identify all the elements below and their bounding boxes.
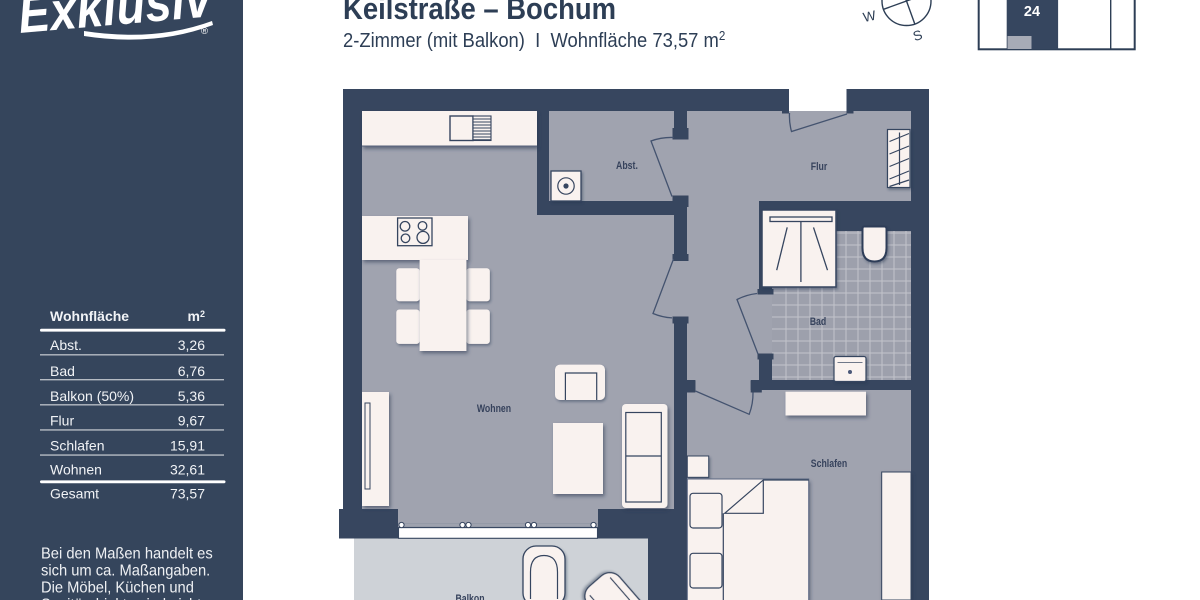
svg-text:5,36: 5,36 [178, 388, 205, 404]
svg-text:Wohnen: Wohnen [477, 403, 511, 415]
svg-text:®: ® [201, 26, 208, 37]
svg-text:Wohnen: Wohnen [50, 462, 102, 478]
svg-text:Gesamt: Gesamt [50, 486, 99, 502]
svg-text:73,57: 73,57 [170, 486, 205, 502]
svg-text:W: W [862, 8, 878, 25]
svg-text:Die Möbel, Küchen und: Die Möbel, Küchen und [41, 579, 194, 597]
svg-text:15,91: 15,91 [170, 437, 205, 453]
svg-text:2-Zimmer (mit Balkon) I Wohn: 2-Zimmer (mit Balkon) I Wohnfläche 73,57… [343, 29, 725, 53]
svg-text:Schlafen: Schlafen [811, 458, 847, 470]
svg-text:Balkon (50%): Balkon (50%) [50, 388, 134, 404]
svg-text:Abst.: Abst. [50, 337, 82, 353]
svg-text:sich um ca. Maßangaben.: sich um ca. Maßangaben. [41, 562, 210, 580]
svg-text:9,67: 9,67 [178, 413, 205, 429]
svg-text:Bei den Maßen handelt es: Bei den Maßen handelt es [41, 545, 213, 563]
svg-text:Abst.: Abst. [616, 160, 638, 172]
svg-text:Flur: Flur [50, 413, 74, 429]
svg-text:Balkon: Balkon [455, 593, 484, 600]
svg-text:3,26: 3,26 [178, 337, 205, 353]
svg-text:Keilstraße – Bochum: Keilstraße – Bochum [343, 0, 616, 27]
svg-text:24: 24 [1024, 4, 1040, 20]
svg-text:Schlafen: Schlafen [50, 437, 104, 453]
svg-text:Bad: Bad [810, 316, 826, 328]
svg-text:Sanitärobjekte sind nicht: Sanitärobjekte sind nicht [41, 596, 202, 600]
svg-text:Bad: Bad [50, 363, 75, 379]
svg-text:S: S [911, 27, 924, 44]
svg-text:Flur: Flur [811, 161, 828, 173]
svg-text:32,61: 32,61 [170, 462, 205, 478]
svg-text:Wohnfläche: Wohnfläche [50, 308, 129, 324]
svg-text:6,76: 6,76 [178, 363, 205, 379]
